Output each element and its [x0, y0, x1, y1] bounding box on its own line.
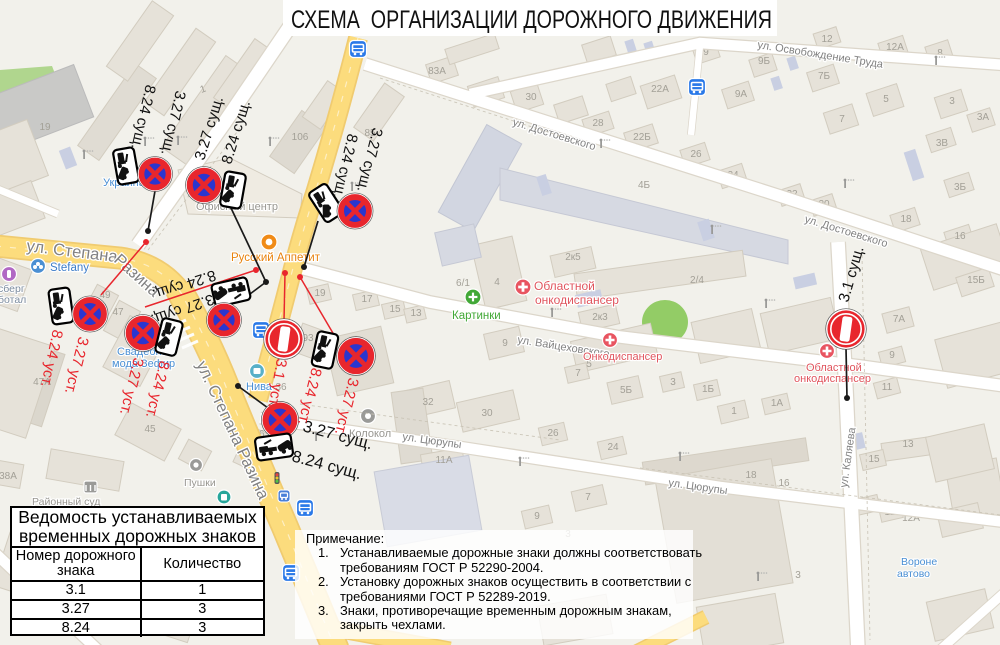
svg-text:11: 11	[882, 382, 893, 393]
svg-text:7А: 7А	[893, 314, 906, 325]
svg-text:Пушки: Пушки	[184, 477, 216, 489]
svg-text:Онкодиспансер: Онкодиспансер	[583, 351, 662, 363]
svg-text:18: 18	[745, 470, 757, 481]
svg-text:11А: 11А	[435, 455, 452, 466]
svg-text:9Б: 9Б	[758, 56, 771, 67]
svg-text:Stefany: Stefany	[50, 262, 89, 274]
svg-text:Областной: Областной	[534, 279, 595, 293]
svg-text:3: 3	[670, 377, 676, 388]
svg-text:7: 7	[839, 114, 845, 125]
svg-text:5: 5	[883, 94, 889, 105]
svg-text:1А: 1А	[771, 398, 784, 409]
svg-text:3: 3	[795, 570, 801, 581]
svg-text:83А: 83А	[428, 66, 446, 77]
svg-text:13: 13	[902, 439, 914, 450]
svg-text:19: 19	[39, 122, 51, 133]
svg-text:18: 18	[900, 214, 912, 225]
svg-text:47: 47	[112, 307, 124, 318]
svg-text:30: 30	[525, 92, 537, 103]
svg-text:24: 24	[607, 442, 619, 453]
svg-text:4: 4	[494, 277, 500, 288]
svg-text:15: 15	[868, 454, 880, 465]
svg-text:22А: 22А	[651, 84, 669, 95]
svg-text:16: 16	[954, 231, 966, 242]
svg-text:3: 3	[949, 96, 955, 107]
svg-text:онкодиспансер: онкодиспансер	[535, 293, 619, 307]
svg-text:7: 7	[585, 492, 591, 503]
svg-text:Вороне: Вороне	[901, 556, 937, 568]
svg-text:2/4: 2/4	[690, 275, 704, 286]
svg-text:2к3: 2к3	[592, 312, 608, 323]
svg-text:22Б: 22Б	[633, 132, 651, 143]
svg-text:9: 9	[889, 350, 895, 361]
svg-text:30: 30	[481, 408, 493, 419]
svg-text:19: 19	[314, 288, 326, 299]
svg-text:Картинки: Картинки	[452, 310, 501, 322]
svg-text:26: 26	[547, 428, 559, 439]
svg-text:15: 15	[389, 304, 401, 315]
svg-text:онкодиспансер: онкодиспансер	[794, 373, 871, 385]
svg-text:6/1: 6/1	[456, 278, 470, 289]
svg-text:45: 45	[144, 424, 156, 435]
svg-text:ботал: ботал	[0, 294, 26, 306]
svg-text:1: 1	[731, 406, 737, 417]
svg-text:5Б: 5Б	[620, 385, 633, 396]
svg-text:15Б: 15Б	[967, 275, 985, 286]
svg-text:28: 28	[592, 118, 604, 129]
svg-text:16: 16	[778, 478, 790, 489]
svg-text:26: 26	[690, 149, 702, 160]
svg-text:автово: автово	[897, 568, 930, 580]
svg-text:9А: 9А	[735, 89, 748, 100]
svg-text:9: 9	[502, 338, 508, 349]
svg-text:38А: 38А	[0, 471, 17, 482]
svg-text:7Б: 7Б	[818, 71, 831, 82]
svg-text:32: 32	[422, 397, 434, 408]
svg-text:3А: 3А	[977, 112, 990, 123]
svg-text:17: 17	[361, 294, 373, 305]
svg-text:4Б: 4Б	[638, 180, 651, 191]
svg-text:2к5: 2к5	[565, 252, 581, 263]
svg-text:13: 13	[410, 308, 422, 319]
svg-text:1Б: 1Б	[702, 384, 715, 395]
svg-text:9: 9	[534, 511, 540, 522]
svg-text:7: 7	[575, 368, 581, 379]
svg-text:3В: 3В	[936, 138, 949, 149]
svg-text:12: 12	[821, 34, 833, 45]
svg-text:106: 106	[292, 132, 309, 143]
svg-text:3Б: 3Б	[954, 182, 967, 193]
svg-text:49: 49	[99, 290, 111, 301]
